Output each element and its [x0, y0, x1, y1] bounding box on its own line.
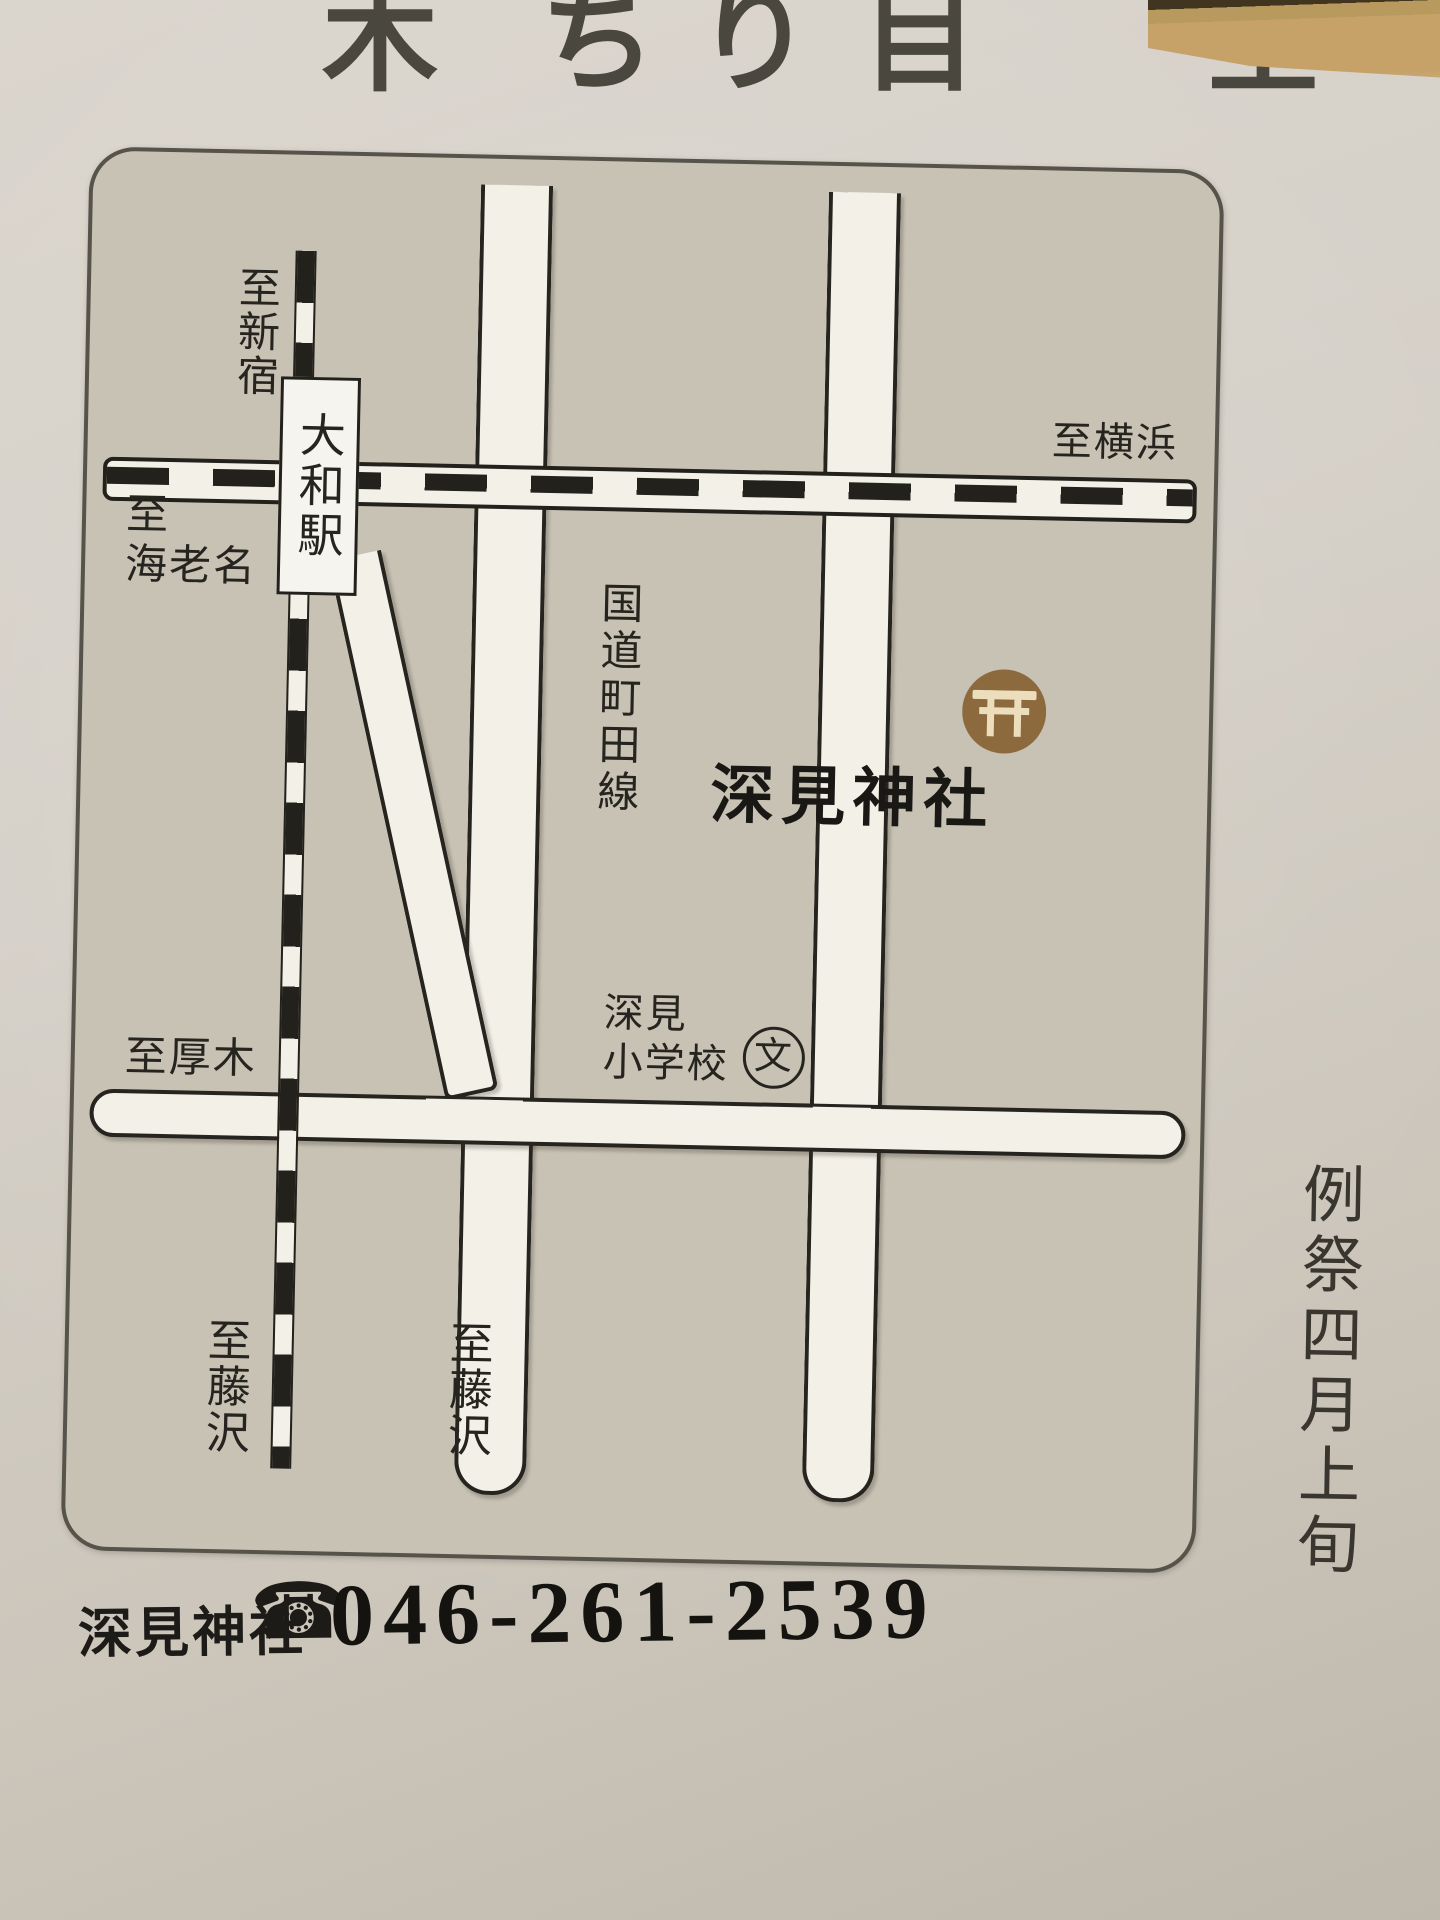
label-route-name: 国道町田線 — [590, 581, 644, 817]
torii-icon — [961, 669, 1047, 755]
top-fragment: り — [696, 0, 812, 114]
top-fragment: ち — [540, 0, 656, 114]
label-to-shinjuku: 至新宿 — [230, 265, 282, 398]
photo-page: 木 ち り 目 全 大和駅 至新宿 至横浜 至 海老名 — [0, 0, 1440, 1920]
railway-dashes — [107, 467, 1193, 507]
station-label: 大和駅 — [284, 410, 353, 561]
school-name-line1: 深見 — [603, 989, 730, 1040]
school-name: 深見 小学校 — [602, 989, 730, 1089]
label-to-ebina-line2: 海老名 — [125, 539, 258, 591]
label-to-atsugi: 至厚木 — [124, 1031, 257, 1083]
road-kokudo-machida — [454, 184, 553, 1495]
road-east-vertical — [802, 192, 901, 1503]
school-name-line2: 小学校 — [602, 1038, 729, 1089]
road-atsugi-horizontal — [89, 1088, 1186, 1159]
label-to-yokohama: 至横浜 — [1051, 418, 1178, 468]
footer-phone-number: 046-261-2539 — [329, 1558, 937, 1666]
label-to-ebina: 至 海老名 — [125, 489, 259, 591]
label-to-ebina-line1: 至 — [126, 489, 259, 541]
intersection-patch — [425, 1099, 500, 1139]
school-symbol-icon: 文 — [742, 1026, 805, 1089]
footer-shrine-name: 深見神社 — [78, 1587, 307, 1668]
school-symbol-text: 文 — [753, 1035, 794, 1081]
top-fragment: 目 — [862, 0, 978, 114]
school-label-group: 深見 小学校 文 — [602, 989, 806, 1091]
station-box: 大和駅 — [276, 376, 361, 596]
railway-horizontal — [102, 457, 1197, 524]
festival-note: 例祭四月上旬 — [1286, 1161, 1360, 1582]
shrine-name-on-map: 深見神社 — [710, 757, 996, 838]
access-map: 大和駅 至新宿 至横浜 至 海老名 国道町田線 至厚木 至藤沢 至藤沢 深見 小… — [60, 146, 1224, 1573]
label-to-fujisawa-rail: 至藤沢 — [196, 1317, 251, 1456]
top-fragment: 木 — [322, 0, 438, 114]
intersection-patch — [812, 1107, 871, 1146]
label-to-fujisawa-road: 至藤沢 — [438, 1320, 493, 1459]
telephone-icon: ☎ — [250, 1565, 348, 1657]
